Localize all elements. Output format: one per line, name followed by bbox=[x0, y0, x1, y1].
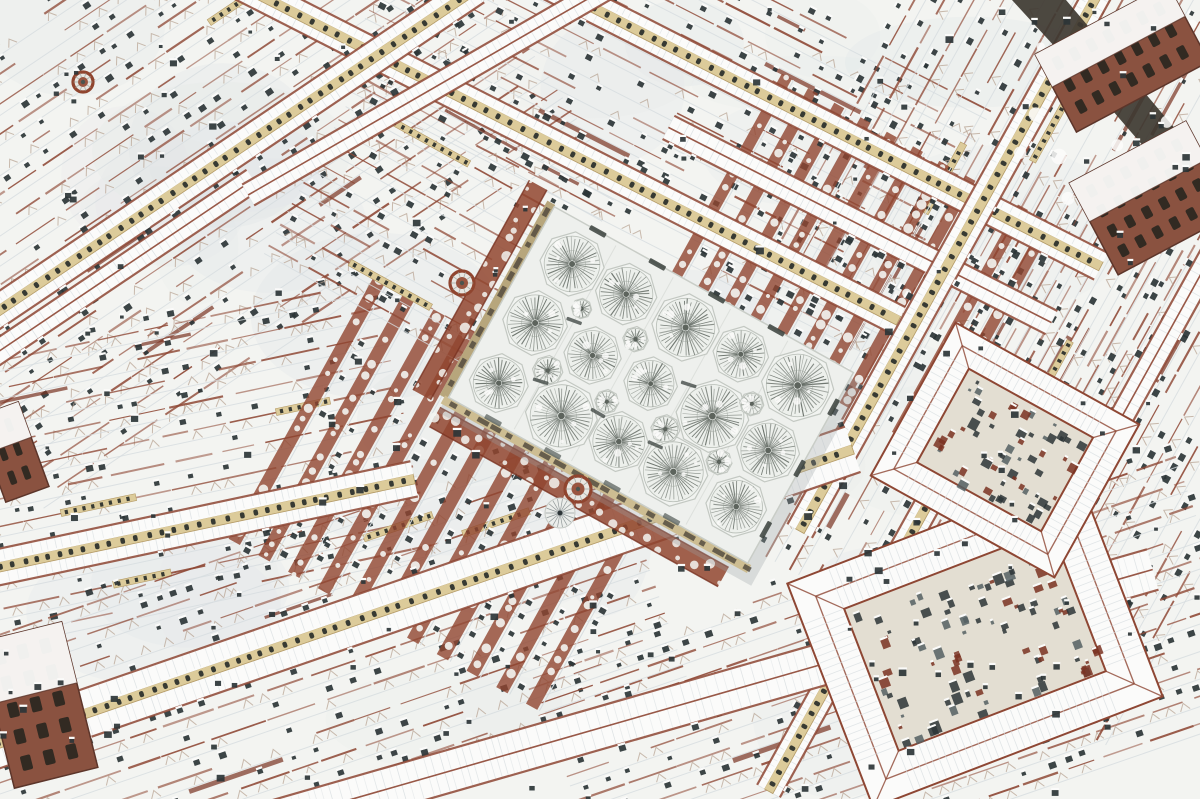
aerial-photograph bbox=[0, 0, 1200, 799]
aerial-photo-svg bbox=[0, 0, 1200, 799]
